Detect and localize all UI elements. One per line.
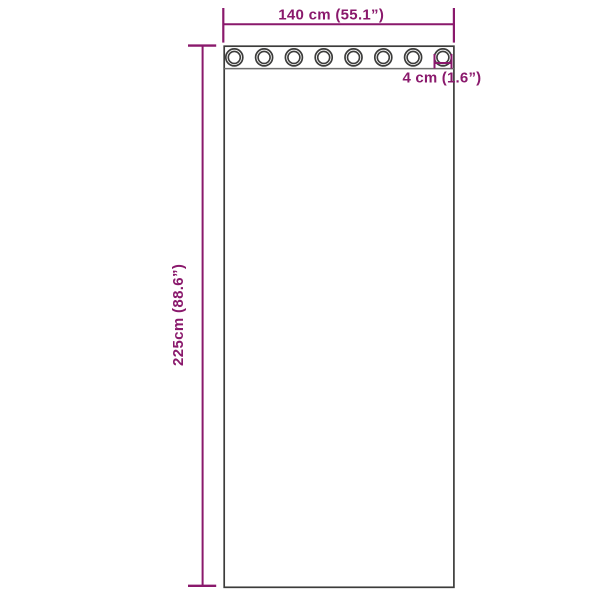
svg-text:140 cm (55.1”): 140 cm (55.1”) [278, 7, 384, 24]
svg-text:4 cm (1.6”): 4 cm (1.6”) [402, 69, 481, 86]
svg-text:225cm (88.6”): 225cm (88.6”) [170, 264, 187, 366]
